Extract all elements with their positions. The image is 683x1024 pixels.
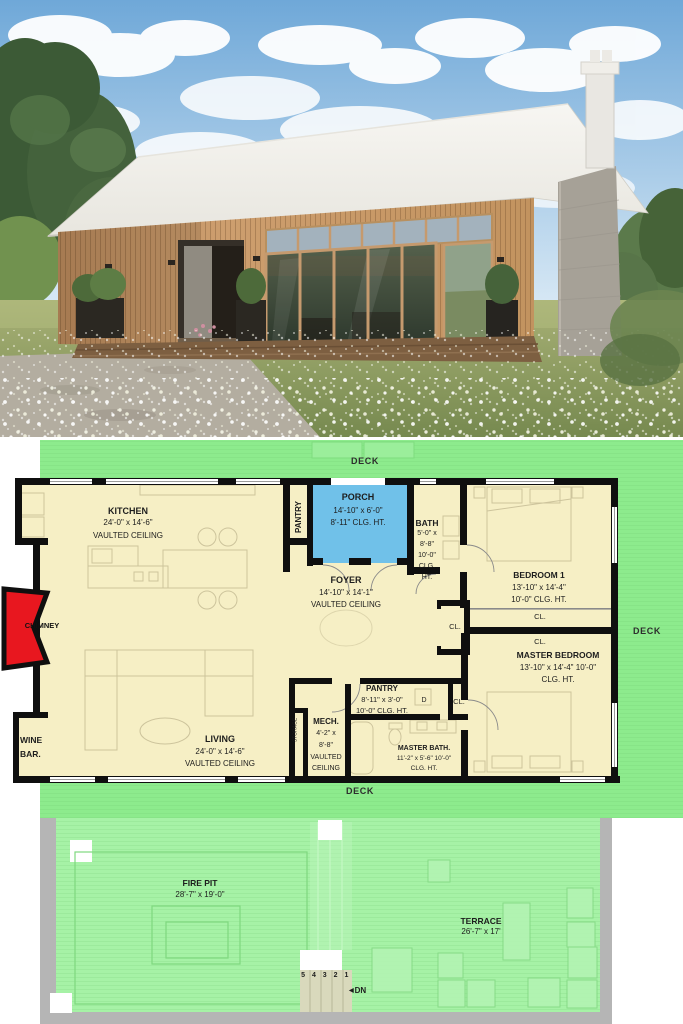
- closet-lines: [470, 608, 611, 610]
- pantry-lower-note: 10'-0" CLG. HT.: [356, 707, 408, 715]
- mech-note-1: VAULTED: [310, 754, 341, 761]
- master-bedroom-dims: 13'-10" x 14'-4" 10'-0": [520, 664, 596, 672]
- storage-label: STORAGE: [294, 718, 299, 742]
- porch-note: 8'-11" CLG. HT.: [331, 519, 386, 527]
- closet-label-hall: CL.: [449, 623, 461, 631]
- bath-dims-1: 5'-0" x: [417, 530, 436, 537]
- dn-arrow-icon: ◀: [349, 988, 354, 994]
- master-bedroom-label: MASTER BEDROOM: [517, 651, 600, 660]
- wine-bar-label-1: WINE: [20, 736, 42, 745]
- terrace-label: TERRACE: [460, 917, 501, 926]
- porch-label: PORCH: [342, 493, 375, 502]
- foyer-note: VAULTED CEILING: [311, 601, 381, 609]
- kitchen-note: VAULTED CEILING: [93, 532, 163, 540]
- porch-dims: 14'-10" x 6'-0": [333, 507, 382, 515]
- deck-bottom-label: DECK: [346, 787, 374, 796]
- foyer-label: FOYER: [330, 576, 361, 585]
- kitchen-dims: 24'-0" x 14'-6": [103, 519, 152, 527]
- living-dims: 24'-0" x 14'-6": [195, 748, 244, 756]
- pantry-lower-label: PANTRY: [366, 685, 398, 693]
- bedroom1-dims: 13'-10" x 14'-4": [512, 584, 566, 592]
- deck-top-label: DECK: [351, 457, 379, 466]
- living-label: LIVING: [205, 735, 235, 744]
- bath-dims-4: CLG.: [419, 563, 435, 570]
- exterior-photo: [0, 0, 683, 437]
- pinned-image: DECK DECK DECK KITCHEN 24'-0" x 14'-6" V…: [0, 0, 683, 1024]
- pantry-upper-label: PANTRY: [295, 501, 303, 533]
- bath-label: BATH: [416, 519, 439, 528]
- chimney-label: CHIMNEY: [25, 622, 60, 630]
- mech-label: MECH.: [313, 718, 339, 726]
- pantry-lower-dims: 8'-11" x 3'-0": [361, 696, 402, 704]
- bath-dims-5: HT.: [422, 574, 433, 581]
- wine-bar-label-2: BAR.: [20, 750, 41, 759]
- master-bath-dims: 11'-2" x 5'-6" 10'-0": [397, 756, 451, 763]
- deck-right-label: DECK: [633, 627, 661, 636]
- floor-plan: DECK DECK DECK KITCHEN 24'-0" x 14'-6" V…: [0, 437, 683, 1024]
- bath-dims-3: 10'-0": [418, 552, 436, 559]
- mech-note-2: CEILING: [312, 765, 340, 772]
- foyer-dims: 14'-10" x 14'-1": [319, 589, 373, 597]
- living-note: VAULTED CEILING: [185, 760, 255, 768]
- master-bedroom-note: CLG. HT.: [542, 676, 575, 684]
- mech-dims-1: 4'-2" x: [316, 730, 335, 737]
- mech-dims-2: 8'-8": [319, 742, 333, 749]
- master-bath-label: MASTER BATH.: [398, 745, 450, 752]
- dryer-label: D: [421, 697, 426, 704]
- closet-label-1: CL.: [534, 613, 546, 621]
- fire-pit-label: FIRE PIT: [183, 879, 218, 888]
- kitchen-label: KITCHEN: [108, 507, 148, 516]
- master-bath-note: CLG. HT.: [411, 766, 438, 773]
- bath-dims-2: 8'-8": [420, 541, 434, 548]
- dn-text: DN: [355, 987, 367, 995]
- bedroom1-label: BEDROOM 1: [513, 571, 564, 580]
- stair-numbers: 5 4 3 2 1: [301, 972, 351, 979]
- bedroom1-note: 10'-0" CLG. HT.: [511, 596, 567, 604]
- closet-label-lower: CL.: [453, 698, 465, 706]
- fire-pit-dims: 28'-7" x 19'-0": [175, 891, 224, 899]
- stairs-dn-label: ◀ DN: [349, 987, 366, 995]
- terrace-dims: 26'-7" x 17': [461, 928, 500, 936]
- closet-label-2: CL.: [534, 638, 546, 646]
